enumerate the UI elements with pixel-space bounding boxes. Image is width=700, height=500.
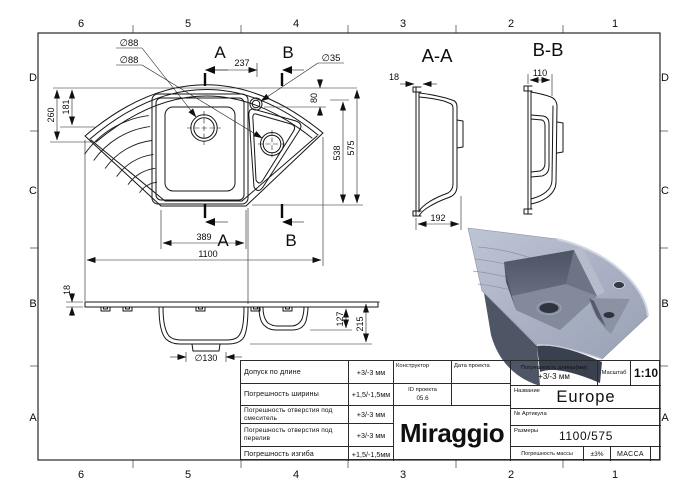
length-tolerance-value: +3/-3 мм (538, 372, 570, 381)
dim-side-18: 18 (62, 285, 72, 295)
dim-215: 215 (355, 316, 365, 331)
mass-value-cell (651, 447, 661, 461)
dia-drain-outlet: ∅130 (195, 353, 218, 363)
dim-389: 389 (196, 232, 211, 242)
tolerance-row-value: +1,5/-1,5мм (349, 447, 394, 461)
project-date-value (452, 384, 511, 406)
dia-main-drain-label: ∅88 (120, 38, 139, 49)
project-date-label: Дата проекта (452, 361, 511, 384)
dim-110: 110 (533, 68, 547, 78)
project-id-value: 05.6 (416, 395, 428, 402)
scale-value: 1:10 (631, 361, 661, 386)
dim-192: 192 (430, 213, 445, 223)
dim-aa-18: 18 (389, 72, 399, 82)
dim-237: 237 (234, 58, 249, 68)
grid-col-label: 4 (293, 18, 299, 30)
section-letter-a-top: A (214, 43, 226, 62)
section-bb-title: B-B (533, 39, 564, 60)
section-letter-b-bottom: B (285, 231, 296, 250)
mass-tolerance-label: Погрешность массы (511, 447, 584, 461)
grid-col-label: 2 (508, 18, 514, 30)
grid-row-label: C (661, 185, 669, 197)
tolerance-row-value: +3/-3 мм (349, 406, 394, 424)
size-label: Размеры (514, 428, 538, 434)
dia-tap-hole-label: ∅35 (322, 53, 341, 64)
section-aa-title: A-A (422, 45, 454, 66)
tolerance-row-label: Допуск по длине (241, 361, 349, 384)
length-tolerance-label: Погрешность длины(мм) (521, 365, 587, 372)
dim-575: 575 (346, 140, 356, 155)
grid-row-label: B (29, 298, 36, 310)
grid-row-label: D (661, 72, 669, 84)
grid-row-label: A (29, 412, 37, 424)
tolerance-row-label: Погрешность отверстия под смеситель (241, 406, 349, 424)
section-letter-a-bottom: A (217, 231, 229, 250)
grid-col-label: 3 (400, 18, 406, 30)
mass-label: МАССА (611, 447, 651, 461)
title-block: Допуск по длине +3/-3 мм Погрешность шир… (240, 360, 660, 460)
grid-col-label: 4 (293, 469, 299, 481)
grid-row-label: B (661, 298, 668, 310)
grid-row-label: C (29, 185, 37, 197)
scale-label: Масштаб (598, 361, 631, 386)
tolerance-row-value: +1,5/-1,5мм (349, 384, 394, 406)
project-id-label: ID проекта (408, 387, 437, 394)
grid-col-label: 6 (78, 18, 84, 30)
name-label: Название (514, 388, 540, 394)
tolerance-row-value: +3/-3 мм (349, 424, 394, 447)
dim-127: 127 (335, 311, 345, 326)
dim-260: 260 (46, 107, 56, 122)
designer-label: Конструктор (394, 361, 452, 384)
grid-row-label: A (661, 412, 669, 424)
grid-col-label: 6 (78, 469, 84, 481)
dim-538: 538 (332, 145, 342, 160)
dim-181: 181 (61, 99, 71, 114)
tolerance-row-label: Погрешность ширины (241, 384, 349, 406)
grid-col-label: 1 (612, 18, 618, 30)
section-letter-b-top: B (282, 43, 293, 62)
dim-80: 80 (309, 93, 319, 103)
grid-row-label: D (29, 72, 37, 84)
grid-col-label: 2 (508, 469, 514, 481)
tolerance-row-label: Погрешность изгиба (241, 447, 349, 461)
tolerance-row-value: +3/-3 мм (349, 361, 394, 384)
grid-col-label: 5 (185, 469, 191, 481)
dia-second-drain-label: ∅88 (120, 55, 139, 66)
tolerance-row-label: Погрешность отверстия под перелив (241, 424, 349, 447)
mass-tolerance-value: ±3% (584, 447, 611, 461)
grid-col-label: 1 (612, 469, 618, 481)
grid-col-label: 3 (400, 469, 406, 481)
dim-1100: 1100 (198, 249, 217, 259)
brand-logo: Miraggio (394, 406, 511, 461)
grid-col-label: 5 (185, 18, 191, 30)
article-label: № Артикула (514, 411, 547, 417)
